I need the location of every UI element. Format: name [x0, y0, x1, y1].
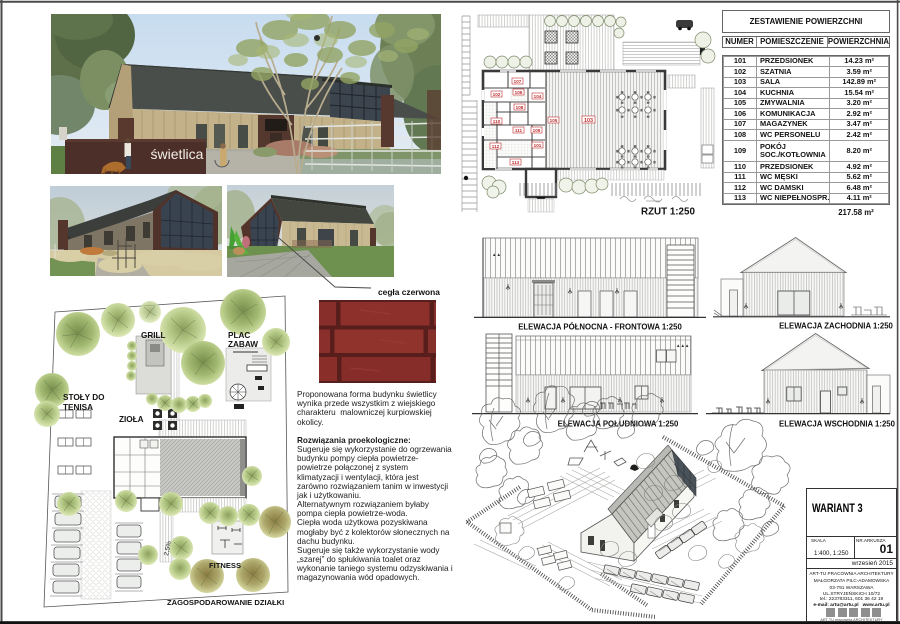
svg-text:110: 110 [493, 119, 501, 124]
svg-text:105: 105 [550, 118, 558, 123]
svg-text:106: 106 [515, 90, 523, 95]
svg-text:111: 111 [515, 128, 523, 133]
svg-text:ELEWACJA ZACHODNIA 1:250: ELEWACJA ZACHODNIA 1:250 [779, 322, 893, 331]
svg-text:ZIOŁA: ZIOŁA [119, 415, 144, 424]
svg-text:ZABAW: ZABAW [228, 340, 258, 349]
svg-text:FITNESS: FITNESS [209, 561, 241, 570]
svg-text:107: 107 [514, 79, 522, 84]
svg-text:GRILL: GRILL [141, 331, 166, 340]
svg-text:113: 113 [512, 160, 520, 165]
svg-text:▲▲▲: ▲▲▲ [676, 343, 689, 348]
svg-text:ELEWACJA PÓŁNOCNA - FRONTOWA: ELEWACJA PÓŁNOCNA - FRONTOWA 1:250 [518, 323, 682, 332]
svg-text:ZAGOSPODAROWANIE DZIAŁKI: ZAGOSPODAROWANIE DZIAŁKI [167, 598, 284, 607]
svg-text:STOŁY DO: STOŁY DO [63, 393, 105, 402]
svg-text:TENISA: TENISA [63, 403, 93, 412]
svg-text:cegła czerwona: cegła czerwona [378, 287, 440, 297]
svg-text:PLAC: PLAC [228, 331, 250, 340]
svg-text:108: 108 [516, 105, 524, 110]
svg-text:RZUT 1:250: RZUT 1:250 [641, 207, 695, 218]
svg-text:109: 109 [533, 128, 541, 133]
svg-text:104: 104 [534, 94, 542, 99]
svg-text:112: 112 [492, 144, 500, 149]
svg-text:101: 101 [534, 143, 542, 148]
svg-text:▲▲: ▲▲ [492, 252, 501, 257]
svg-text:102: 102 [493, 92, 501, 97]
svg-text:świetlica: świetlica [151, 146, 204, 162]
svg-text:103: 103 [584, 118, 593, 124]
svg-text:ELEWACJA WSCHODNIA 1:250: ELEWACJA WSCHODNIA 1:250 [779, 420, 896, 429]
